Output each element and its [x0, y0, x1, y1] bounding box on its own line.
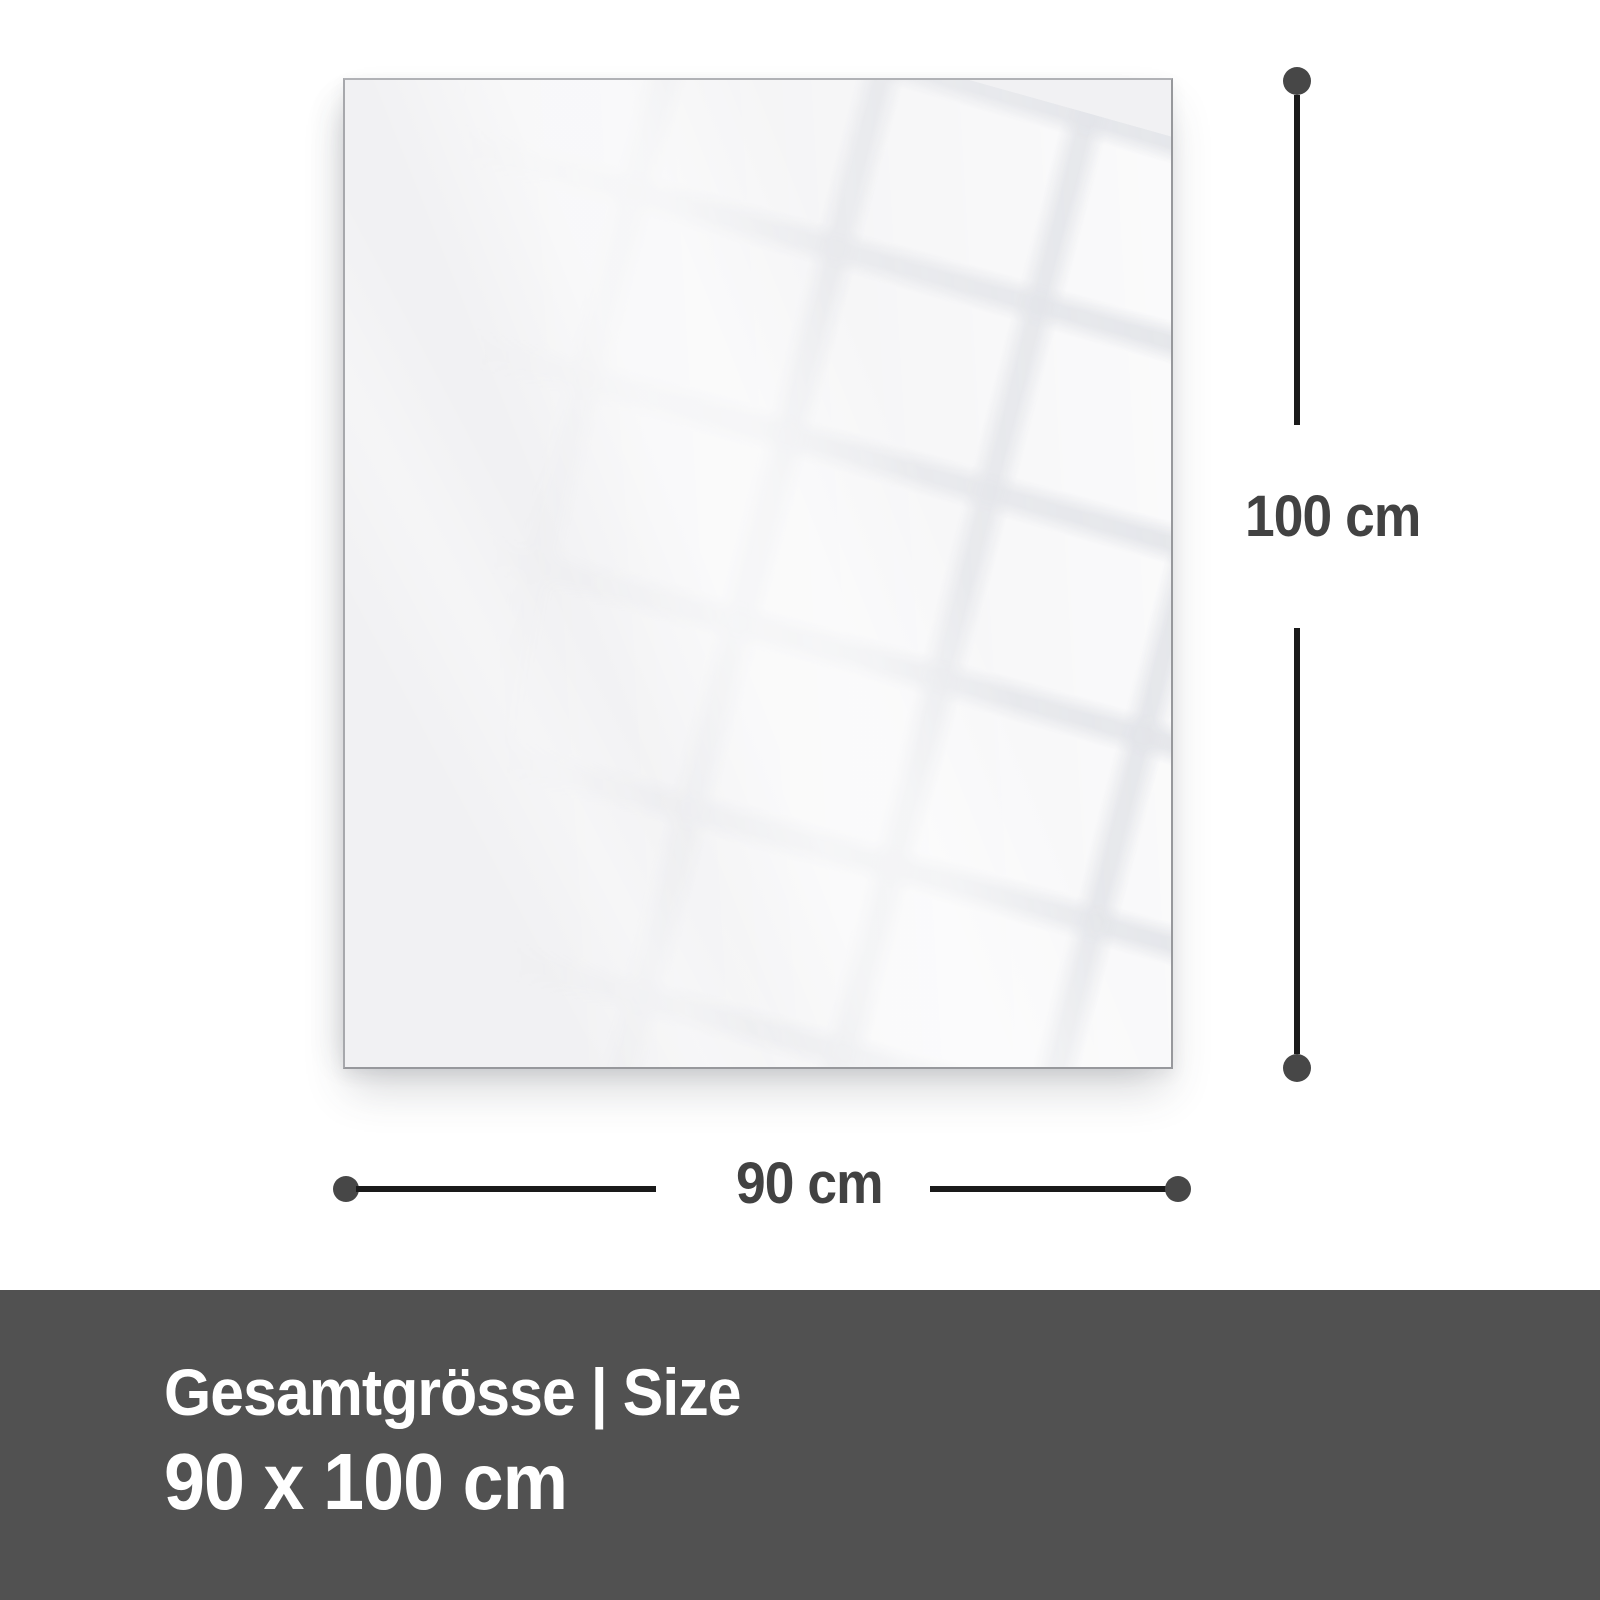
height-dimension-label: 100 cm — [1245, 488, 1420, 546]
glass-reflection — [345, 80, 1171, 1067]
width-dimension-label: 90 cm — [736, 1155, 883, 1213]
height-endpoint-dot-bottom-icon — [1283, 1054, 1311, 1082]
height-dimension-line-upper — [1294, 95, 1300, 425]
product-panel — [343, 78, 1173, 1069]
light-streak-icon — [345, 80, 1171, 1067]
size-banner-title: Gesamtgrösse | Size — [164, 1359, 741, 1425]
size-banner: Gesamtgrösse | Size 90 x 100 cm — [0, 1290, 1600, 1600]
product-size-diagram: 100 cm 90 cm Gesamtgrösse | Size 90 x 10… — [0, 0, 1600, 1600]
height-endpoint-dot-top-icon — [1283, 67, 1311, 95]
size-banner-value: 90 x 100 cm — [164, 1442, 567, 1522]
height-dimension-line-lower — [1294, 628, 1300, 1054]
width-dimension-line-left — [356, 1186, 656, 1192]
width-dimension-line-right — [930, 1186, 1166, 1192]
width-endpoint-dot-right-icon — [1165, 1176, 1191, 1202]
